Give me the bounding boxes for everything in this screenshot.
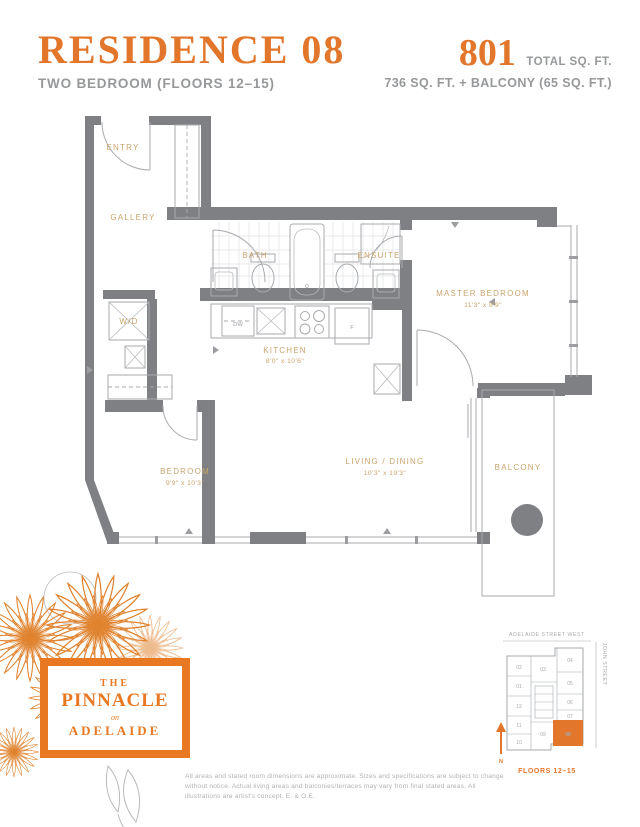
master-bedroom-label: MASTER BEDROOM <box>436 289 530 298</box>
walls-layer <box>85 116 592 544</box>
bedroom-dims: 9'9" x 10'3" <box>166 480 204 487</box>
floorplan-page: RESIDENCE 08 TWO BEDROOM (FLOORS 12–15) … <box>0 0 640 827</box>
floors-label: FLOORS 12–15 <box>518 768 576 775</box>
unit-03: 03 <box>540 667 546 673</box>
north-arrow: N <box>496 722 506 765</box>
ensuite-closet <box>374 364 400 394</box>
north-label: N <box>499 759 503 765</box>
gray-leaves <box>106 766 139 827</box>
pinnacle-logo: THE PINNACLE on ADELAIDE <box>40 658 190 758</box>
dishwasher-label: DW <box>233 322 243 328</box>
unit-07: 07 <box>567 714 573 720</box>
page-subtitle: TWO BEDROOM (FLOORS 12–15) <box>38 76 345 91</box>
kitchen-label: KITCHEN <box>263 346 307 355</box>
unit-12: 12 <box>516 704 522 710</box>
total-sqft-label: TOTAL SQ. FT. <box>526 56 612 68</box>
gallery-label: GALLERY <box>110 213 155 222</box>
unit-11: 11 <box>516 723 521 729</box>
sliding-closet <box>108 375 172 399</box>
kitchen-dims: 8'0" x 10'6" <box>266 358 304 365</box>
kitchen-fixtures: DW F <box>211 304 372 344</box>
header-right: 801 TOTAL SQ. FT. 736 SQ. FT. + BALCONY … <box>384 34 612 90</box>
balcony-label: BALCONY <box>495 463 542 472</box>
ensuite-label: ENSUITE <box>357 251 400 260</box>
unit-09: 09 <box>540 732 546 738</box>
living-dining-label: LIVING / DINING <box>346 457 425 466</box>
floorplan-drawing: DW F <box>85 108 605 608</box>
street-top-label: ADELAIDE STREET WEST <box>509 632 585 638</box>
total-sqft-number: 801 <box>459 32 516 74</box>
page-title: RESIDENCE 08 <box>38 30 345 70</box>
header-left: RESIDENCE 08 TWO BEDROOM (FLOORS 12–15) <box>38 30 345 91</box>
hall-closet <box>125 346 145 368</box>
living-dining-dims: 10'3" x 19'3" <box>364 470 407 477</box>
balcony-column <box>511 504 543 536</box>
logo-pinnacle: PINNACLE <box>61 690 168 712</box>
balcony-area <box>468 390 554 596</box>
unit-02: 02 <box>516 665 522 671</box>
logo-the: THE <box>100 678 130 689</box>
street-right-label: JOHN STREET <box>601 643 607 686</box>
area-breakdown: 736 SQ. FT. + BALCONY (65 SQ. FT.) <box>384 76 612 90</box>
bedroom-label: BEDROOM <box>160 467 210 476</box>
unit-06: 06 <box>567 700 573 706</box>
unit-04: 04 <box>567 658 573 664</box>
logo-on: on <box>111 713 119 722</box>
total-area: 801 TOTAL SQ. FT. <box>384 34 612 72</box>
logo-adelaide: ADELAIDE <box>69 723 162 739</box>
bath-label: BATH <box>242 251 268 260</box>
unit-08: 08 <box>565 732 571 738</box>
door-arcs <box>102 122 473 440</box>
entry-closet <box>175 125 199 218</box>
keyplan: ADELAIDE STREET WEST JOHN STREET 02 03 0… <box>495 626 640 776</box>
master-bedroom-dims: 11'3" x 9'9" <box>464 302 502 309</box>
entry-label: ENTRY <box>107 143 140 152</box>
unit-01: 01 <box>516 684 522 690</box>
unit-10: 10 <box>516 740 522 746</box>
fridge-label: F <box>350 325 354 331</box>
unit-05: 05 <box>567 681 573 687</box>
wd-label: W/D <box>119 317 138 326</box>
